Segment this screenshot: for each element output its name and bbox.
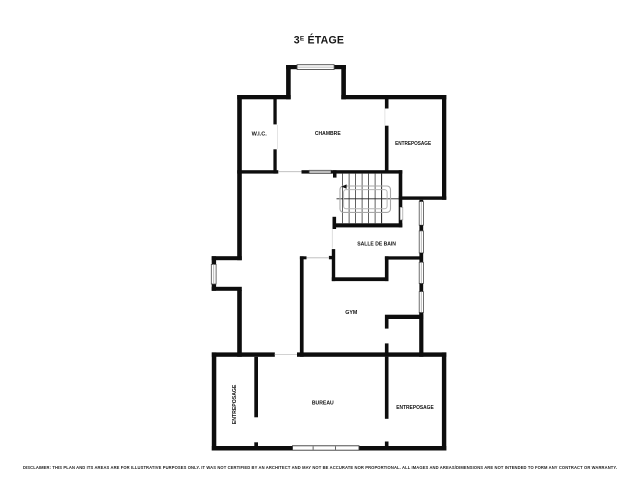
svg-text:ENTREPOSAGE: ENTREPOSAGE <box>395 141 431 147</box>
svg-text:ENTREPOSAGE: ENTREPOSAGE <box>396 405 434 411</box>
svg-text:BUREAU: BUREAU <box>312 400 334 406</box>
svg-text:W.I.C.: W.I.C. <box>252 131 268 137</box>
svg-text:DISCLAIMER: THIS PLAN AND ITS: DISCLAIMER: THIS PLAN AND ITS AREAS ARE … <box>23 465 617 470</box>
svg-text:ENTREPOSAGE: ENTREPOSAGE <box>232 384 238 424</box>
svg-text:GYM: GYM <box>345 310 357 316</box>
svg-text:CHAMBRE: CHAMBRE <box>315 131 341 137</box>
svg-text:SALLE DE BAIN: SALLE DE BAIN <box>357 242 396 248</box>
